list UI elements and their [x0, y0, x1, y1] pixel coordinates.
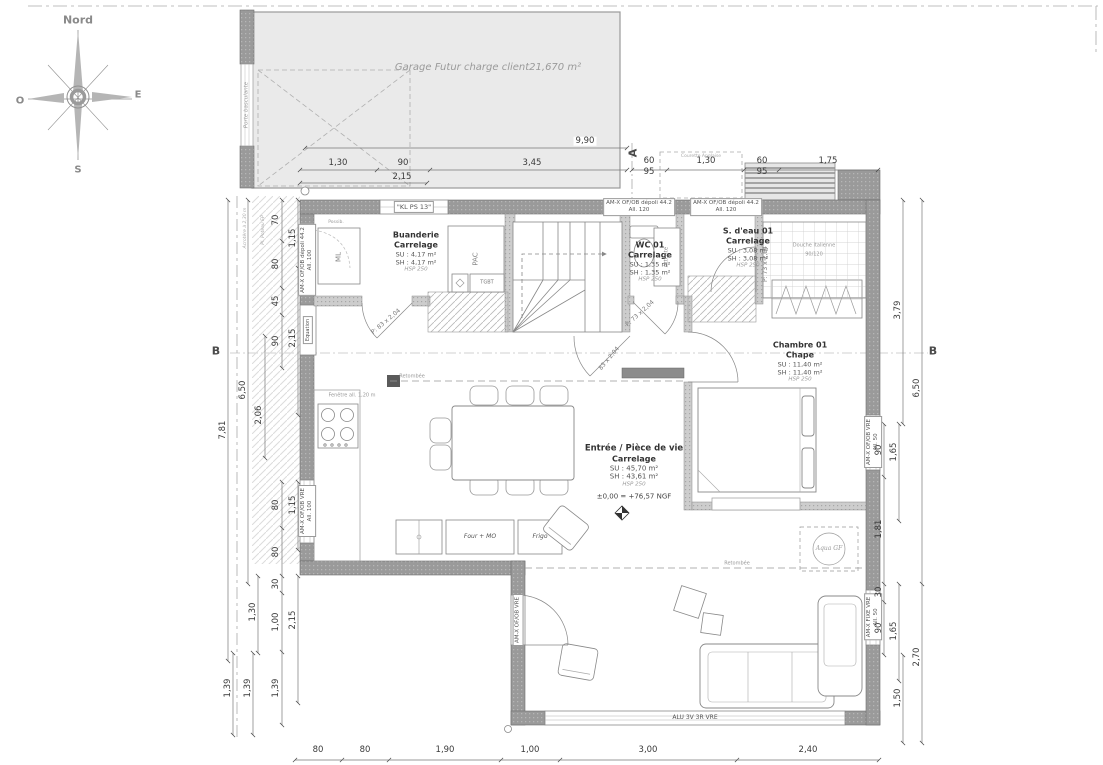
section-mark-b-right: B — [929, 345, 937, 358]
dim-label: 1,50 — [894, 689, 903, 708]
dim-label: 95 — [757, 168, 768, 177]
dim-label: 2,06 — [255, 406, 264, 425]
window-label-right1: AM-X OF/OB VRE All. 50 — [864, 416, 882, 468]
window-ref: AM-X FIXE VRE — [866, 597, 872, 638]
shower-label: Douche Italienne — [793, 244, 835, 249]
bench — [712, 498, 800, 510]
retombee-label: Retombée — [724, 562, 750, 567]
dim-label: 2,15 — [289, 611, 298, 630]
window-ref: AM-X OF/OB VRE — [866, 419, 872, 465]
room-label-buanderie: Buanderie Carrelage SU : 4,17 m² SH : 4,… — [393, 230, 439, 273]
room-su: SU : 45,70 m² — [585, 464, 683, 473]
room-finish: Carrelage — [393, 240, 439, 250]
window-sill: All. 100 — [307, 250, 313, 271]
dim-label: 95 — [644, 168, 655, 177]
dim-label: 30 — [272, 579, 281, 590]
ngf-level-label: ±0,00 = +76,57 NGF — [597, 494, 672, 501]
room-label-sejour: Entrée / Pièce de vie Carrelage SU : 45,… — [585, 444, 683, 489]
window-label-depoli-top2: AM-X OF/OB dépoli 44.2 All. 120 — [690, 198, 762, 216]
dim-label: 7,81 — [219, 421, 228, 440]
room-finish: Chape — [773, 350, 827, 360]
bed — [698, 388, 816, 510]
aqua-stamp-label: Aqua GF — [816, 546, 842, 552]
dim-label: 70 — [272, 215, 281, 226]
compass-north-label: Nord — [63, 14, 93, 27]
dim-label: 60 — [757, 157, 768, 166]
window-sill: All. 120 — [629, 207, 650, 213]
dim-label: 80 — [272, 547, 281, 558]
compass-rose — [28, 30, 132, 160]
dim-label: 80 — [272, 500, 281, 511]
garage-door-label: Porte basculante — [244, 82, 250, 128]
window-label-alu: ALU 3V 3R VRE — [672, 715, 717, 721]
dim-label: 1,39 — [224, 679, 233, 698]
dim-label: 2,15 — [393, 173, 412, 182]
dim-label: 3,00 — [639, 746, 658, 755]
dim-label: 1,00 — [272, 613, 281, 632]
dim-label: 30 — [875, 587, 884, 598]
dim-label: 1,30 — [697, 157, 716, 166]
tgbt-label: TGBT — [480, 281, 493, 286]
dim-label: 2,70 — [913, 648, 922, 667]
dim-label: 1,15 — [289, 229, 298, 248]
dim-label: 80 — [272, 259, 281, 270]
room-finish: Carrelage — [585, 454, 683, 464]
window-ref: AM-X OF/OB dépoli 44.2 — [300, 227, 306, 293]
possib-label: Possib. — [328, 221, 344, 226]
dim-label: 1,39 — [244, 679, 253, 698]
window-sill: All. 120 — [716, 207, 737, 213]
acrotere-note: Acrotère à 2,30 m — [244, 208, 249, 249]
room-label-chambre: Chambre 01 Chape SU : 11,40 m² SH : 11,4… — [773, 340, 827, 383]
door-label: P: 73 x 2,04 — [762, 246, 769, 282]
compass-south-label: S — [74, 165, 81, 176]
dim-label: 9,90 — [574, 137, 597, 146]
window-ref: AM-X OF/OB dépoli 44.2 — [606, 200, 672, 206]
window-label-depoli-top1: AM-X OF/OB dépoli 44.2 All. 120 — [603, 198, 675, 216]
room-hsp: HSP 250 — [773, 377, 827, 384]
closet — [688, 276, 756, 322]
window-label-entry: AM-X OF/OB VRE — [513, 594, 524, 646]
dim-label: 1,81 — [875, 520, 884, 539]
level-marker — [615, 506, 629, 520]
window-sill: All. 100 — [307, 501, 313, 522]
fridge-label: Frigo — [532, 534, 547, 540]
dim-label: 90 — [272, 336, 281, 347]
dim-label: 3,79 — [894, 301, 903, 320]
dim-label: 80 — [313, 746, 324, 755]
room-sh: SH : 1,35 m² — [628, 269, 672, 277]
pillow — [802, 396, 814, 436]
fenetre-note: Fenêtre all. 1,20 m — [328, 394, 375, 399]
garage-label: Garage Futur charge client21,670 m² — [395, 63, 581, 73]
room-name: Chambre 01 — [773, 340, 827, 350]
dim-label: 1,65 — [890, 443, 899, 462]
dim-label: 60 — [644, 157, 655, 166]
dining-set — [430, 386, 574, 495]
floorplan-canvas: Nord E S O Garage Futur charge client21,… — [0, 0, 1103, 765]
compass-east-label: E — [135, 90, 142, 101]
room-sh: SH : 4,17 m² — [393, 259, 439, 267]
room-su: SU : 11,40 m² — [773, 360, 827, 368]
shower-tray — [763, 222, 866, 298]
room-sh: SH : 11,40 m² — [773, 369, 827, 377]
dim-label: 45 — [272, 296, 281, 307]
dining-table — [452, 406, 574, 480]
room-hsp: HSP 250 — [585, 482, 683, 489]
dim-label: 2,15 — [289, 329, 298, 348]
room-name: S. d'eau 01 — [723, 226, 773, 236]
room-finish: Carrelage — [723, 236, 773, 246]
poteau-note: Pl. Poteau EP — [262, 215, 267, 244]
tgbt-icon — [452, 274, 468, 292]
dim-label: 2,40 — [799, 746, 818, 755]
window-ref: AM-X OF/OB VRE — [300, 488, 306, 534]
armchairs — [542, 504, 723, 681]
dim-label: 3,45 — [523, 159, 542, 168]
pillow — [802, 448, 814, 488]
room-su: SU : 4,17 m² — [393, 250, 439, 258]
dim-label: 1,65 — [890, 622, 899, 641]
dim-label: 90 — [875, 623, 884, 634]
attente-label: Attente — [664, 247, 670, 267]
dim-label: 1,30 — [329, 159, 348, 168]
chaise-longue — [818, 596, 862, 696]
dim-label: 1,39 — [272, 679, 281, 698]
staircase — [513, 222, 622, 332]
dim-label: 1,30 — [249, 603, 258, 622]
washing-machine-label: ML — [336, 252, 343, 262]
floorplan-drawing — [0, 0, 1103, 765]
dim-label: 90 — [398, 159, 409, 168]
window-ref: AM-X OF/OB dépoli 44.2 — [693, 200, 759, 206]
shower-size-label: 90/120 — [805, 253, 823, 258]
oven-label: Four + MO — [464, 534, 496, 540]
room-hsp: HSP 250 — [393, 267, 439, 274]
dim-label: 90 — [875, 445, 884, 456]
room-hsp: HSP 250 — [628, 277, 672, 284]
equation-label: Equation — [303, 316, 313, 344]
room-sh: SH : 43,61 m² — [585, 473, 683, 482]
window-label-kitchen: AM-X OF/OB VRE All. 100 — [298, 485, 316, 537]
dim-label: 80 — [360, 746, 371, 755]
dim-label: 1,75 — [819, 157, 838, 166]
dim-label: 1,00 — [521, 746, 540, 755]
section-mark-a: A — [627, 149, 640, 158]
dim-label: 6,50 — [913, 379, 922, 398]
dim-label: 1,15 — [289, 496, 298, 515]
sofa — [700, 596, 862, 708]
dim-label: 6,50 — [239, 381, 248, 400]
section-mark-b-left: B — [212, 345, 220, 358]
dim-label: 1,90 — [436, 746, 455, 755]
understair-storage — [428, 292, 508, 332]
room-name: Entrée / Pièce de vie — [585, 444, 683, 455]
retombee-label: Retombée — [399, 375, 425, 380]
heat-pump-label: PAC — [473, 252, 480, 265]
window-label-depoli-left: AM-X OF/OB dépoli 44.2 All. 100 — [298, 224, 316, 296]
garage-area — [240, 10, 620, 195]
compass-west-label: O — [16, 96, 25, 107]
window-label-kl: "KL PS 13" — [394, 201, 434, 213]
room-name: Buanderie — [393, 230, 439, 240]
